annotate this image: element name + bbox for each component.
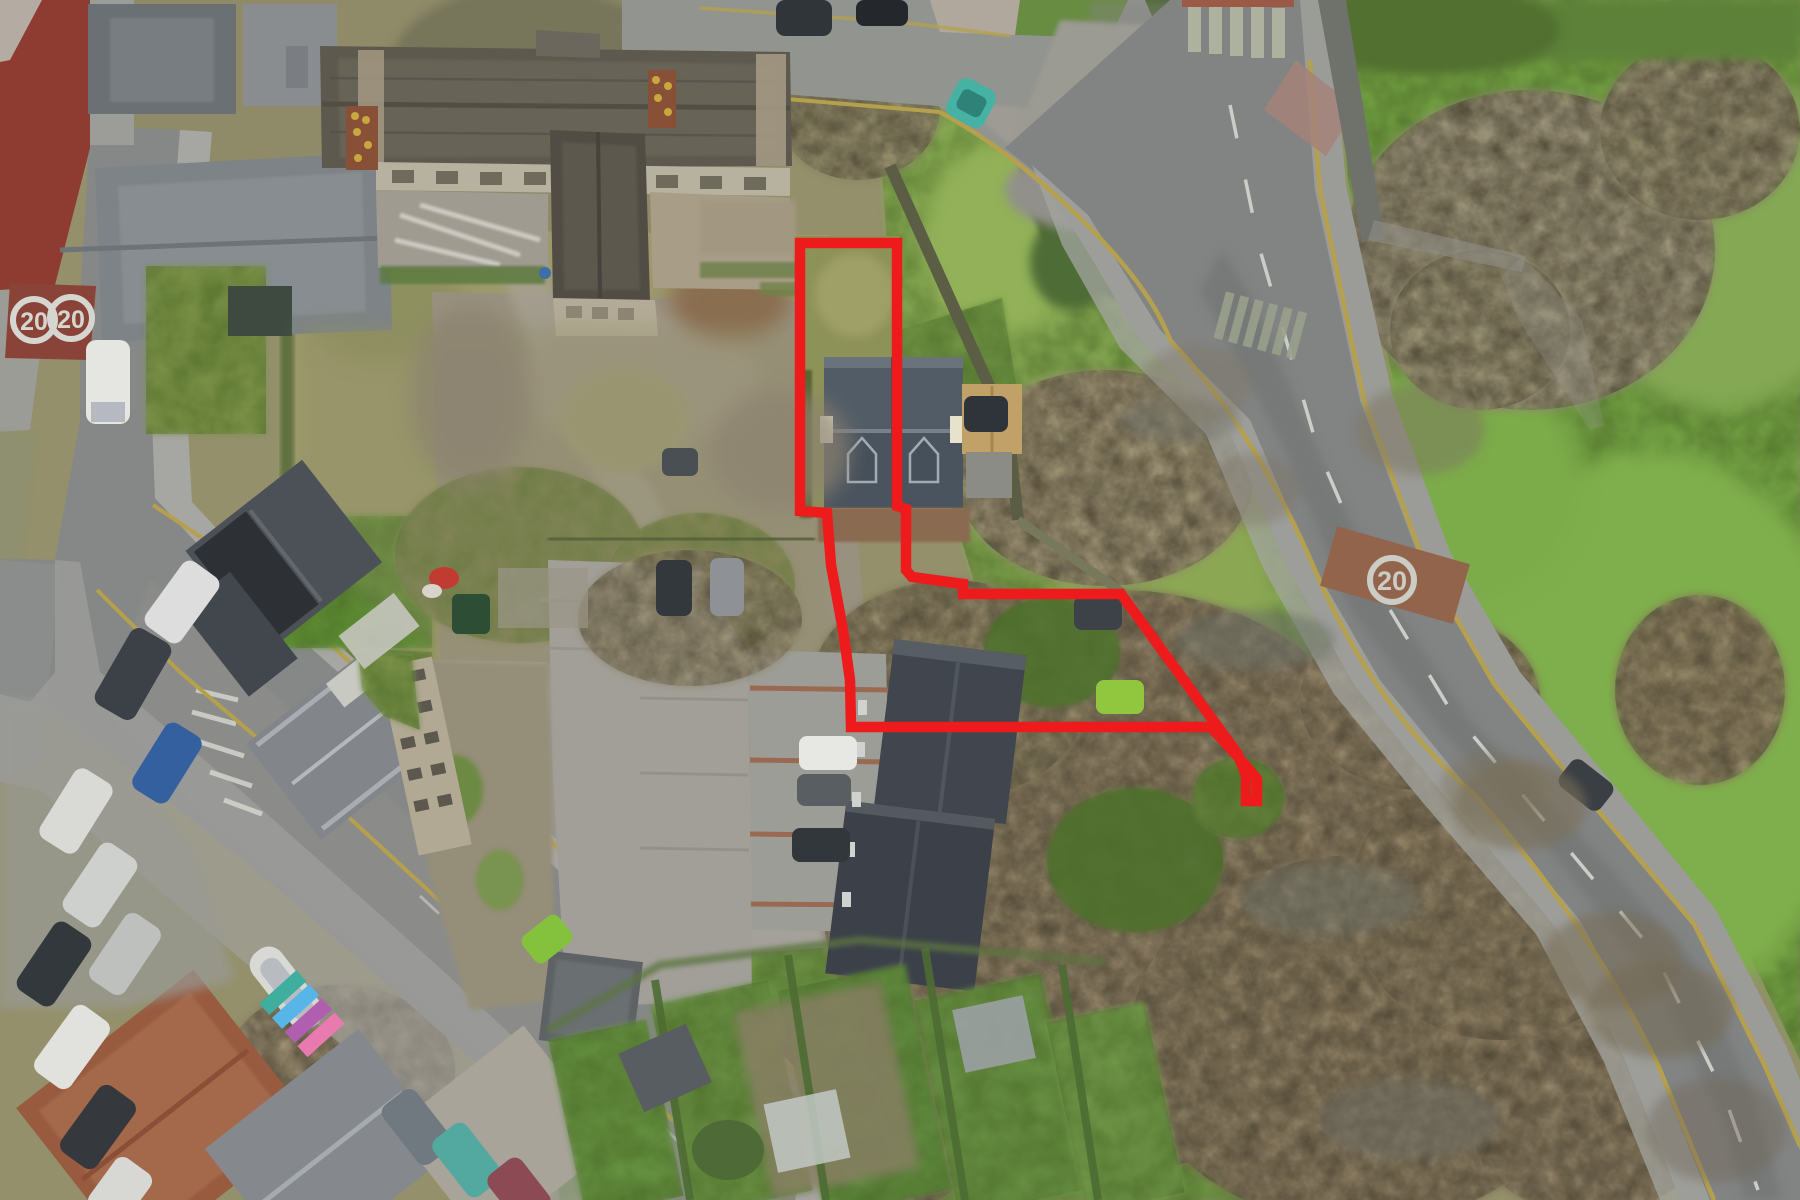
svg-text:20: 20 xyxy=(20,308,48,336)
svg-text:20: 20 xyxy=(1377,566,1407,596)
svg-text:20: 20 xyxy=(57,306,85,334)
